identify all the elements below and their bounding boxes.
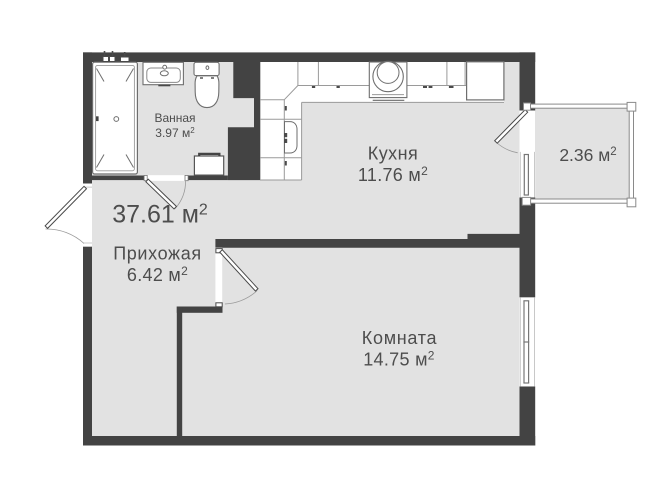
svg-text:Комната: Комната — [362, 328, 438, 348]
svg-text:Прихожая: Прихожая — [113, 244, 202, 264]
svg-text:Кухня: Кухня — [368, 144, 418, 164]
svg-text:Ванная: Ванная — [154, 111, 195, 125]
svg-text:2.36 м2: 2.36 м2 — [559, 145, 616, 165]
svg-text:14.75 м2: 14.75 м2 — [363, 349, 435, 370]
svg-text:3.97 м2: 3.97 м2 — [155, 126, 195, 140]
svg-text:11.76 м2: 11.76 м2 — [358, 164, 428, 185]
svg-text:37.61 м2: 37.61 м2 — [112, 201, 208, 229]
svg-text:6.42 м2: 6.42 м2 — [127, 264, 188, 285]
